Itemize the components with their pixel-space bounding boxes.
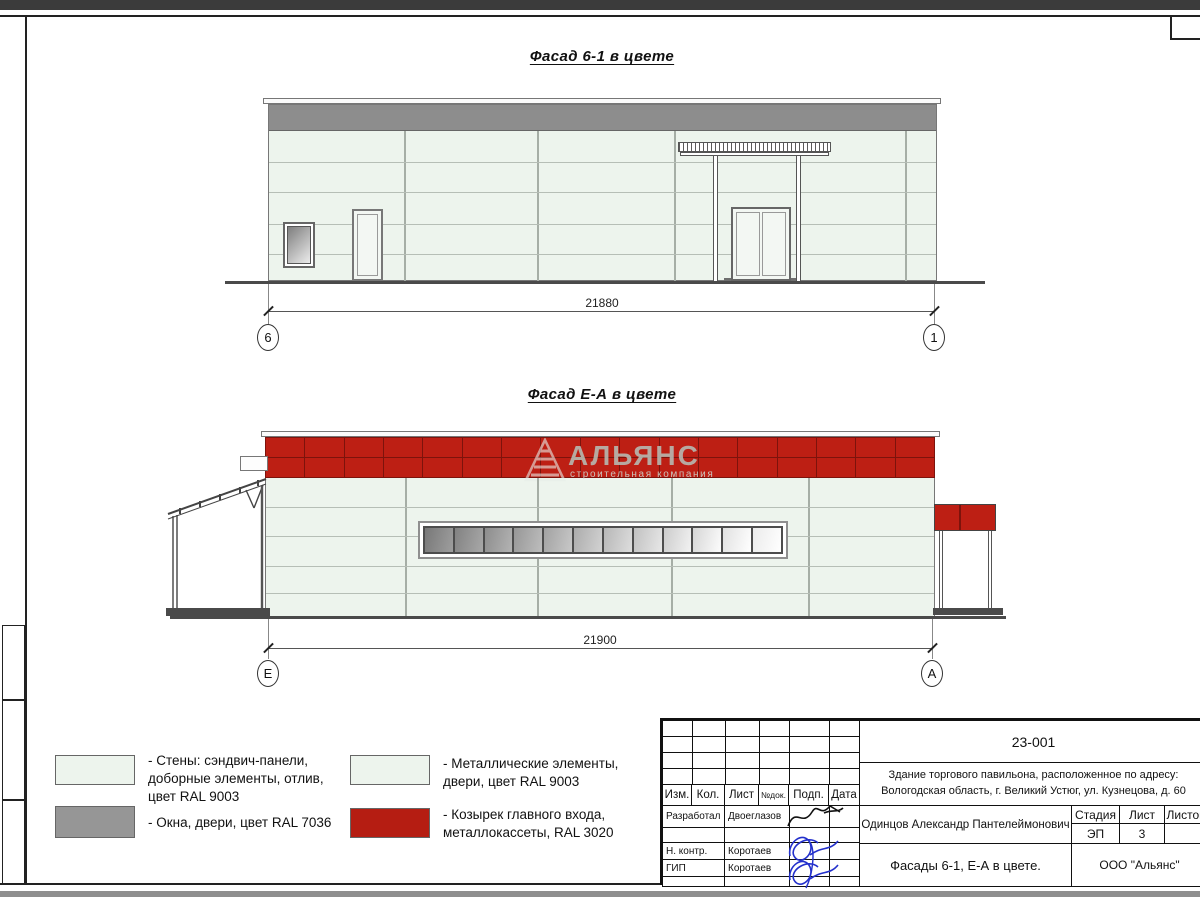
facade1-single-door-panel [357,214,378,276]
facade1-title: Фасад 6-1 в цвете [400,48,804,65]
facade1-dim-value: 21880 [502,296,702,310]
legend-label-walls: - Стены: сэндвич-панели, доборные элемен… [148,752,338,805]
titleblock-tally-cell [725,736,760,753]
titleblock-tally-cell [725,720,760,737]
facade2-right-canopy-post-right [988,531,992,609]
red-cassette [778,438,816,457]
titleblock-tally-cell [662,720,693,737]
facade2-ribbon-window [418,521,788,559]
facade1-canopy [678,142,831,152]
facade2-ribbon-window-frame [423,526,783,554]
facade1-canopy-post-left [713,156,718,281]
titleblock-tally-cell [725,768,760,785]
ribbon-window-pane [544,528,572,552]
titleblock-col-list: Лист [724,784,759,806]
red-cassette [266,438,304,457]
facade2-horizontal-joint [266,566,934,567]
page-bottom-shadow [0,891,1200,897]
titleblock-role-developer: Разработал [662,805,725,828]
frame-margin-cell-1 [2,625,25,700]
watermark-subtitle: строительная компания [570,469,714,480]
facade1-double-door [731,207,791,281]
titleblock-role-ncontrol: Н. контр. [662,842,725,860]
titleblock-tally-cell [759,720,790,737]
titleblock-tally-cell [759,736,790,753]
titleblock-role-empty2 [662,876,725,887]
titleblock-stage-value: ЭП [1071,823,1120,844]
facade1-canopy-post-right [796,156,801,281]
titleblock-tally-cell [692,720,726,737]
red-cassette [384,458,422,477]
red-cassette [266,458,304,477]
red-cassette [463,458,501,477]
frame-margin-cell-3 [2,800,25,884]
frame-corner-stamp-box [1170,15,1200,40]
facade1-horizontal-joint [269,192,936,193]
page-top-edge [0,0,1200,10]
red-cassette [738,438,776,457]
titleblock-role-gip: ГИП [662,859,725,877]
titleblock-col-izm: Изм. [662,784,692,806]
facade2-vertical-joint [808,478,810,616]
red-cassette [305,458,343,477]
titleblock-tally-cell [662,752,693,769]
titleblock-sheet-value: 3 [1119,823,1165,844]
facade2-axis-left: Е [257,660,279,687]
facade1-vertical-joint [905,131,907,281]
titleblock-sheet-title: Фасады 6-1, Е-А в цвете. [859,843,1072,887]
red-cassette [423,438,461,457]
ribbon-window-pane [425,528,453,552]
watermark-logo-icon [524,438,566,482]
signature-ncontrol-gip [780,828,842,890]
titleblock-tally-cell [789,736,830,753]
facade2-axis-right: А [921,660,943,687]
titleblock-tally-cell [829,720,861,737]
facade2-ext-right [932,619,933,659]
facade1-door-leaf-left [736,212,760,276]
facade2-left-canopy [166,468,270,620]
titleblock-sheets-label: Листов [1164,805,1200,824]
red-cassette [305,438,343,457]
title-block: Изм. Кол. Лист №док. Подп. Дата Разработ… [660,718,1200,885]
titleblock-tally-cell [662,768,693,785]
ribbon-window-pane [455,528,483,552]
legend-swatch-windows [55,806,135,838]
facade1-dim-line [268,311,935,312]
titleblock-tally-cell [725,752,760,769]
titleblock-tally-cell [759,752,790,769]
titleblock-tally-cell [692,752,726,769]
facade2-dim-line [268,648,933,649]
red-cassette [423,458,461,477]
titleblock-author: Одинцов Александр Пантелеймонович [859,805,1072,844]
legend-swatch-canopy [350,808,430,838]
titleblock-tally-cell [789,752,830,769]
facade1-axis-left: 6 [257,324,279,351]
titleblock-company: ООО "Альянс" [1071,843,1200,887]
titleblock-doc-number: 23-001 [859,720,1200,763]
facade2-horizontal-joint [266,593,934,594]
facade1-vertical-joint [537,131,539,281]
titleblock-stage-label: Стадия [1071,805,1120,824]
red-cassette [345,438,383,457]
facade2-vertical-joint [405,478,407,616]
red-cassette [738,458,776,477]
facade1-axis-right: 1 [923,324,945,351]
facade1-ext-right [934,284,935,324]
watermark-name: АЛЬЯНС [568,440,700,472]
red-cassette [856,458,894,477]
ribbon-window-pane [723,528,751,552]
titleblock-col-kol: Кол. [691,784,725,806]
red-cassette [463,438,501,457]
titleblock-sheets-value [1164,823,1200,844]
legend-swatch-walls [55,755,135,785]
legend-label-windows: - Окна, двери, цвет RAL 7036 [148,814,348,832]
facade2-right-canopy-base [933,608,1003,615]
frame-left-border [25,15,27,885]
titleblock-sheet-label: Лист [1119,805,1165,824]
ribbon-window-pane [574,528,602,552]
facade1-parapet-band [269,105,936,131]
facade1-ground-line [225,281,985,284]
facade1-door-leaf-right [762,212,786,276]
red-cassette [856,438,894,457]
facade2-ext-left [268,619,269,659]
facade2-horizontal-joint [266,507,934,508]
facade1-ext-left [268,284,269,324]
ribbon-window-pane [604,528,632,552]
ribbon-window-pane [664,528,692,552]
facade2-right-canopy [934,504,996,531]
red-cassette [896,438,934,457]
titleblock-tally-cell [662,736,693,753]
ribbon-window-pane [693,528,721,552]
facade1-canopy-fascia [680,152,829,156]
legend-label-canopy: - Козырек главного входа, металлокассеты… [443,806,643,842]
red-cassette [896,458,934,477]
red-cassette [817,458,855,477]
facade2-dim-value: 21900 [500,633,700,647]
titleblock-tally-cell [829,752,861,769]
titleblock-tally-grid [662,720,860,784]
ribbon-window-pane [753,528,781,552]
titleblock-tally-cell [829,768,861,785]
facade1-vertical-joint [404,131,406,281]
facade2-ground-line [170,616,1006,619]
facade1-horizontal-joint [269,162,936,163]
page: Фасад 6-1 в цвете 21880 6 1 Фасад Е-А в … [0,0,1200,900]
facade1-window [283,222,315,268]
titleblock-project: Здание торгового павильона, расположенно… [859,762,1200,806]
red-cassette [384,438,422,457]
facade2-title: Фасад Е-А в цвете [400,386,804,403]
titleblock-tally-cell [759,768,790,785]
titleblock-tally-cell [692,736,726,753]
red-cassette [817,438,855,457]
legend-swatch-metal [350,755,430,785]
facade1-single-door [352,209,383,281]
red-cassette [778,458,816,477]
facade1-vertical-joint [674,131,676,281]
ribbon-window-pane [514,528,542,552]
titleblock-tally-cell [829,736,861,753]
red-cassette [345,458,383,477]
titleblock-role-empty [662,827,725,843]
titleblock-tally-cell [692,768,726,785]
facade2-right-canopy-post-left [939,531,943,609]
frame-top-border [0,15,1200,17]
titleblock-name-developer: Двоеглазов [724,805,790,828]
legend-label-metal: - Металлические элементы, двери, цвет RA… [443,755,633,791]
facade1-window-glass [287,226,311,264]
ribbon-window-pane [485,528,513,552]
facade2-right-canopy-joint [959,505,961,530]
drawing-sheet: { "facade1": { "title": "Фасад 6-1 в цве… [0,0,1200,900]
red-cassette [699,438,737,457]
frame-margin-cell-2 [2,700,25,800]
ribbon-window-pane [634,528,662,552]
titleblock-tally-cell [789,720,830,737]
titleblock-tally-cell [789,768,830,785]
